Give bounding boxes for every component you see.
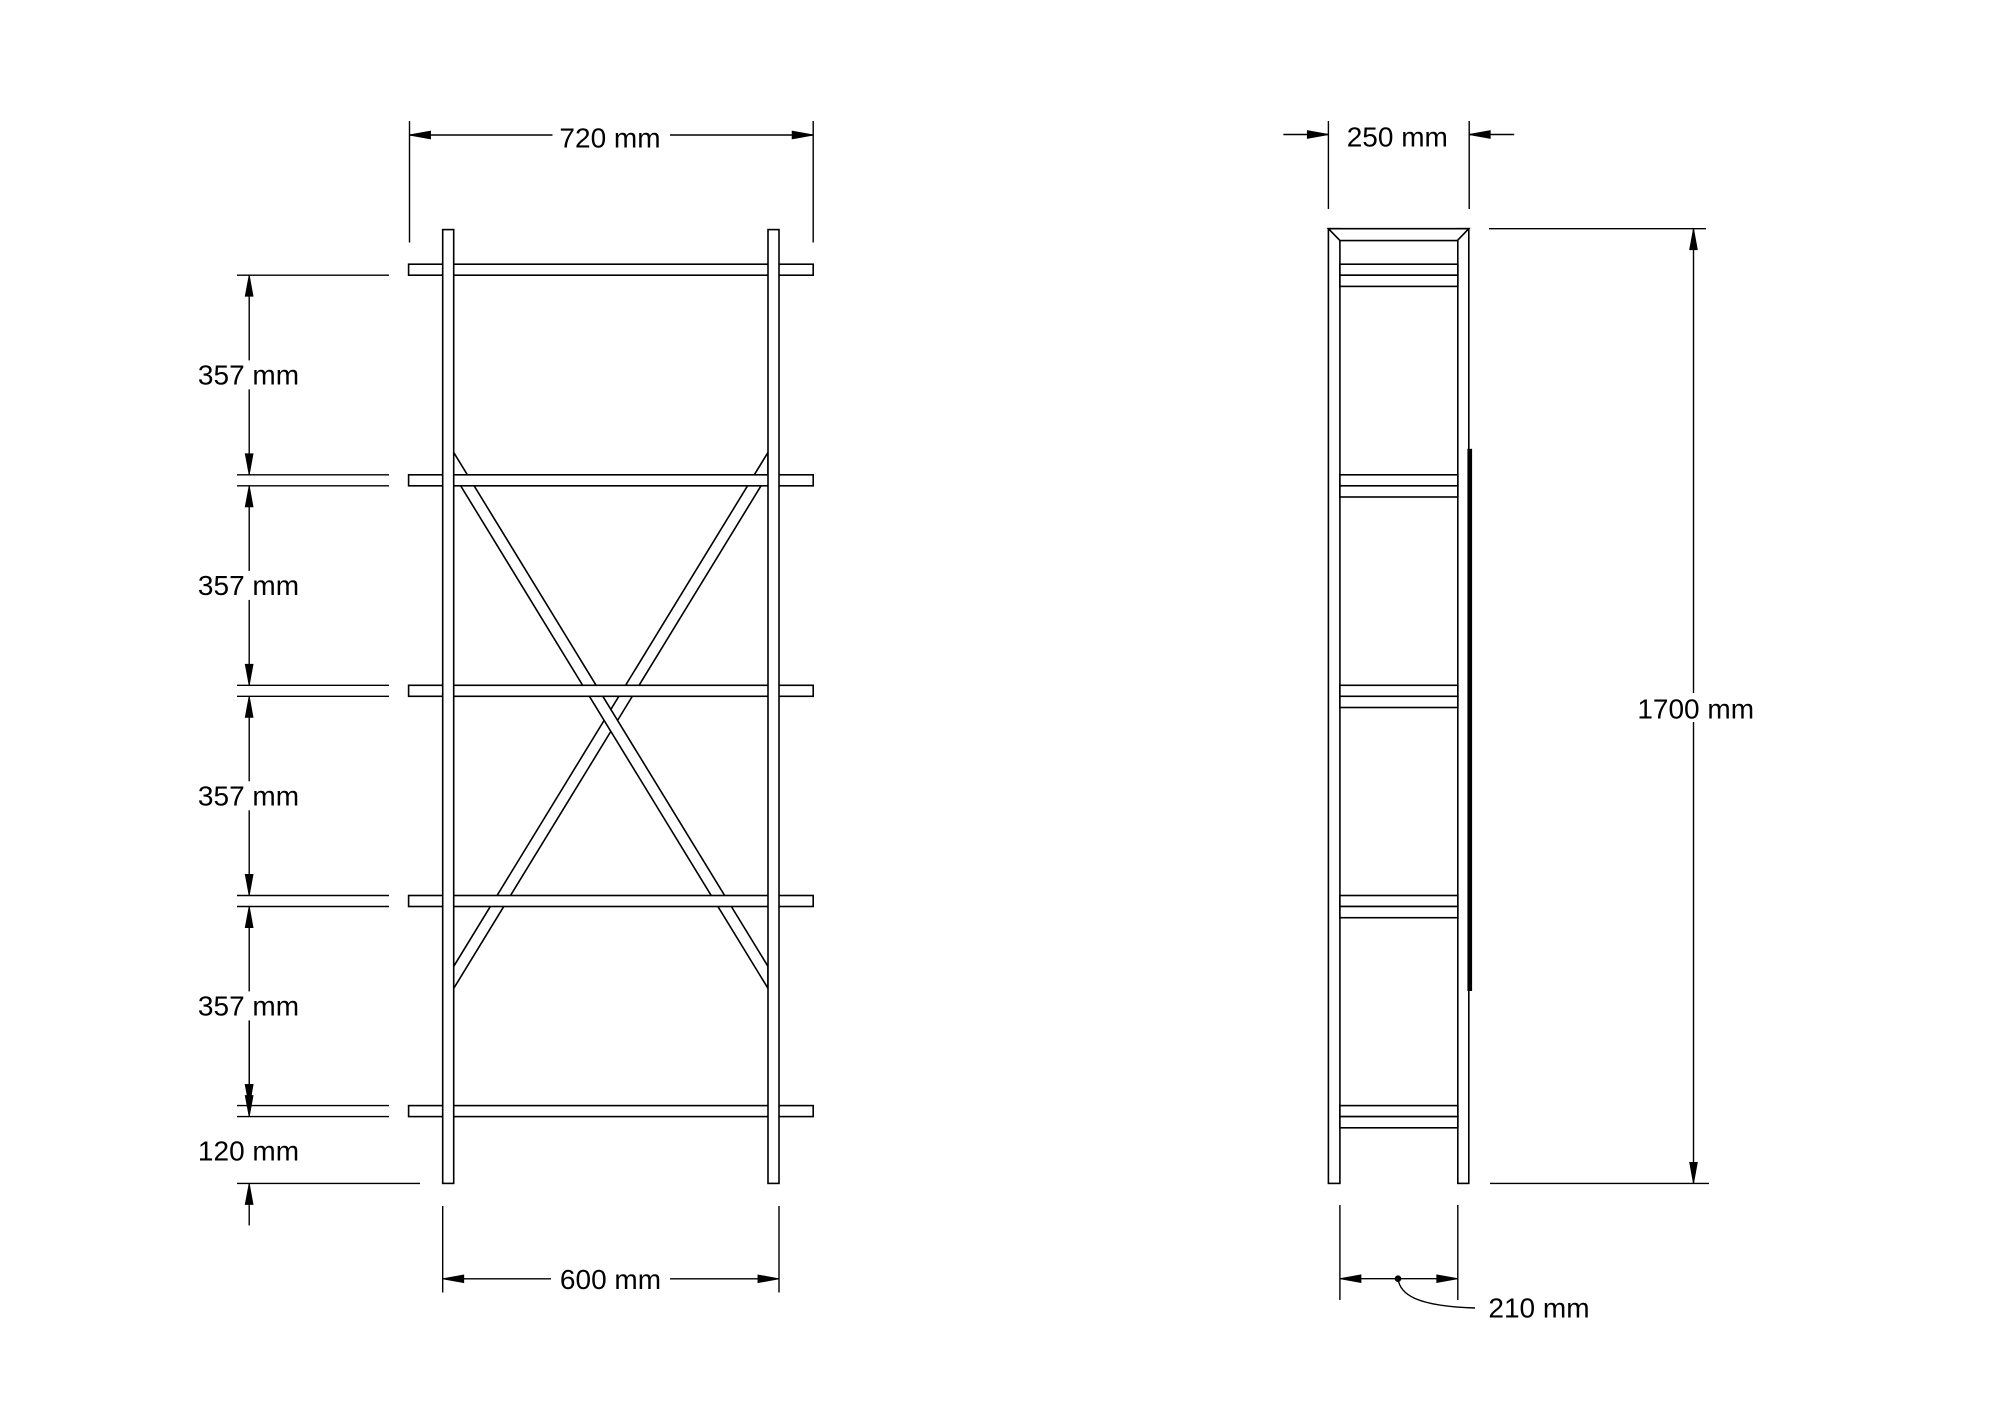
svg-text:357 mm: 357 mm — [198, 990, 299, 1021]
svg-text:120 mm: 120 mm — [198, 1135, 299, 1166]
svg-text:357 mm: 357 mm — [198, 570, 299, 601]
svg-text:600 mm: 600 mm — [560, 1264, 661, 1295]
svg-text:210 mm: 210 mm — [1488, 1293, 1589, 1324]
svg-text:357 mm: 357 mm — [198, 780, 299, 811]
svg-text:357 mm: 357 mm — [198, 359, 299, 390]
svg-text:250 mm: 250 mm — [1347, 122, 1448, 153]
svg-text:720 mm: 720 mm — [559, 123, 660, 154]
svg-text:1700 mm: 1700 mm — [1637, 693, 1754, 724]
